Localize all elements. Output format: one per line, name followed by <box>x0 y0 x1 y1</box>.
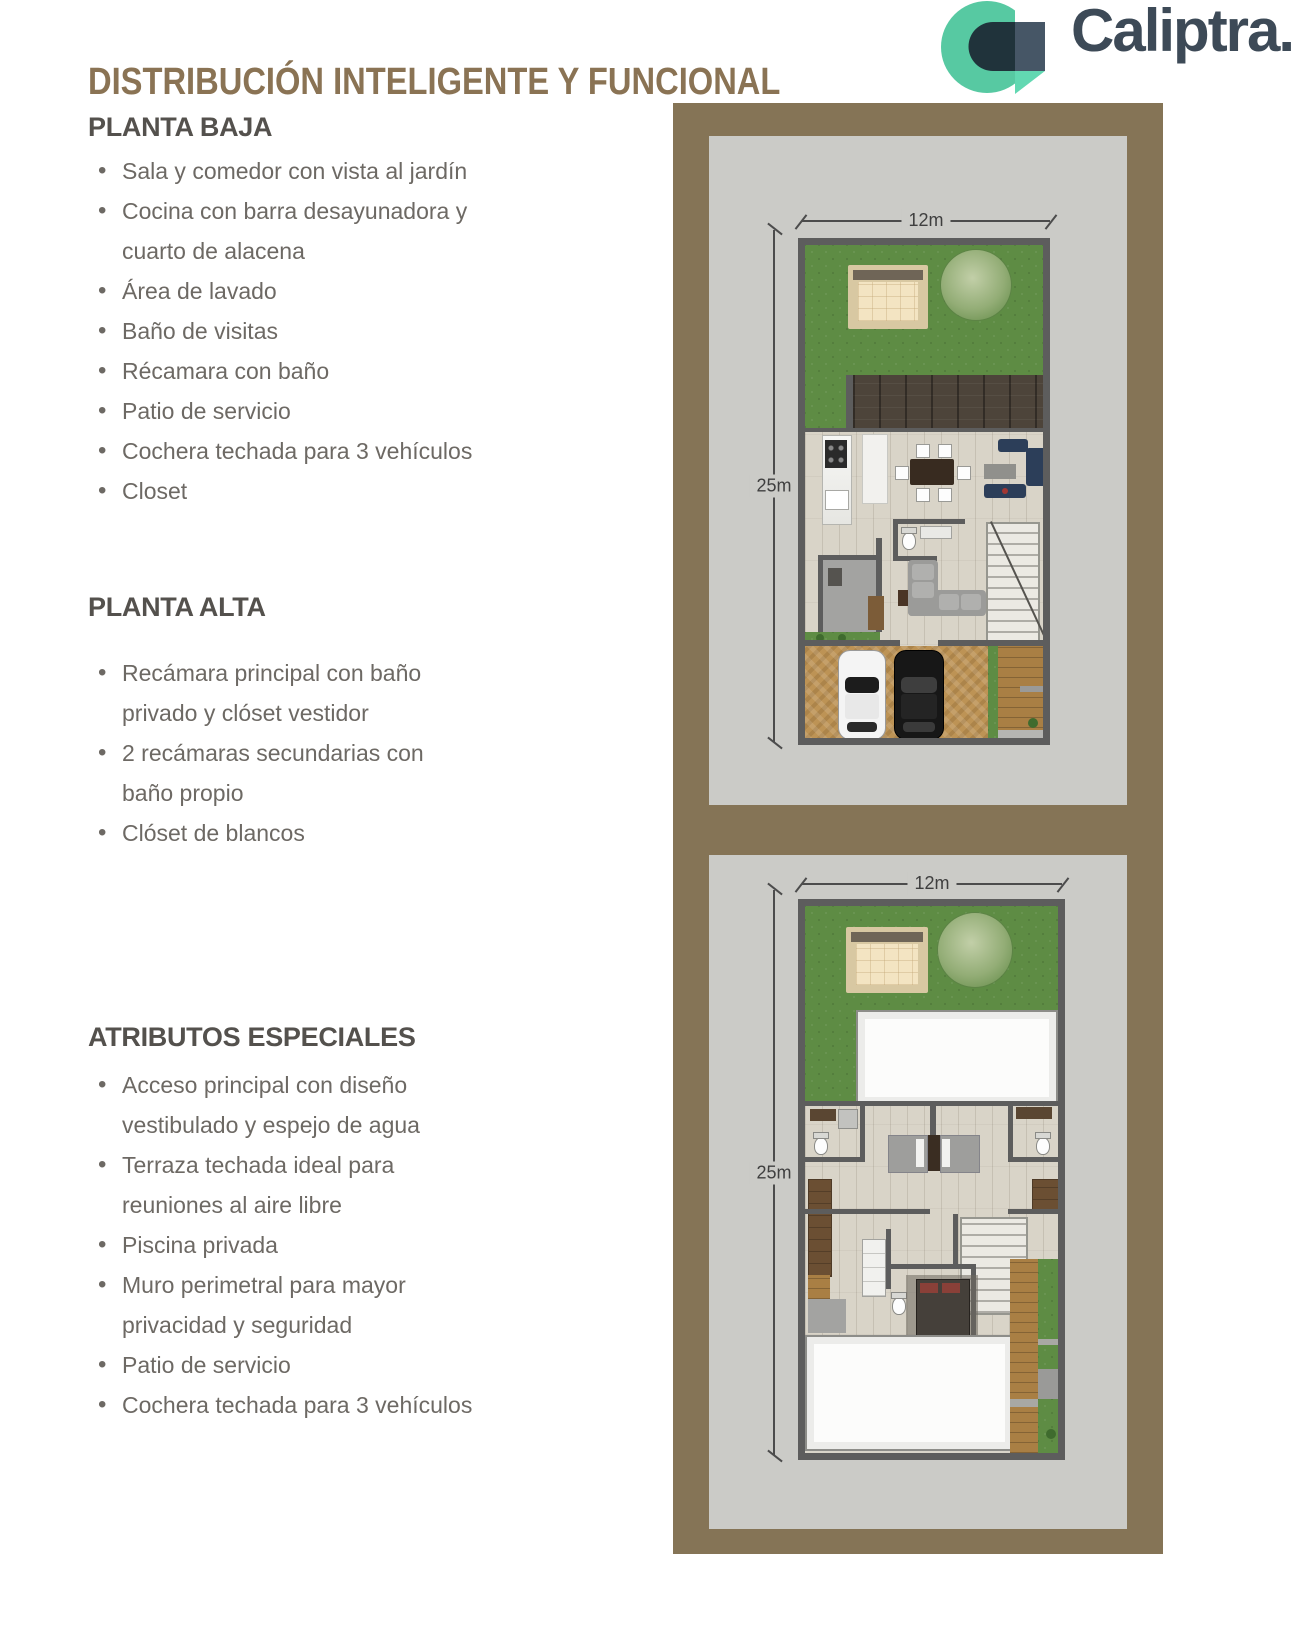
sofa-cushion <box>912 564 934 580</box>
car-black <box>894 650 944 738</box>
height-dimension: 25m <box>773 230 775 742</box>
wall <box>1008 1157 1058 1162</box>
curb <box>1010 1399 1038 1407</box>
sofa-cushion <box>912 582 934 598</box>
wall <box>805 1209 930 1214</box>
car-white <box>838 650 886 738</box>
bed-pillow <box>942 1139 950 1167</box>
stairs <box>986 522 1040 646</box>
daybed-headrest <box>853 270 923 280</box>
width-dimension: 12m <box>802 883 1062 885</box>
list-item: Sala y comedor con vista al jardín <box>122 151 522 191</box>
list-item: Cochera techada para 3 vehículos <box>122 431 522 471</box>
patio-slab <box>1038 1369 1058 1399</box>
carport-roof <box>805 1335 1014 1451</box>
rug <box>984 464 1016 479</box>
kitchen-island <box>862 434 888 504</box>
garden-daybed <box>846 927 928 993</box>
wall <box>893 519 965 524</box>
wall <box>886 1229 891 1289</box>
curb <box>1038 1339 1058 1345</box>
height-dimension: 25m <box>773 890 775 1455</box>
desk <box>1026 448 1043 486</box>
wall <box>805 428 1043 432</box>
list-item: Cocina con barra desayunadora y cuarto d… <box>122 191 522 271</box>
wall <box>1008 1209 1058 1214</box>
bathroom-vanity <box>1016 1107 1052 1119</box>
section-heading: ATRIBUTOS ESPECIALES <box>88 1022 578 1053</box>
dining-chair <box>938 444 952 458</box>
dining-chair <box>916 488 930 502</box>
bed-pillow <box>920 1283 938 1293</box>
list-item: Terraza techada ideal para reuniones al … <box>122 1145 522 1225</box>
planta-baja-lot <box>805 245 1043 738</box>
car-rear-window <box>903 722 935 732</box>
width-dimension: 12m <box>802 220 1050 222</box>
dining-chair <box>957 466 971 480</box>
car-rear-window <box>847 722 877 732</box>
flyer-page: { "header": { "title": "DISTRIBUCIÓN INT… <box>0 0 1312 1628</box>
decor-accent <box>1002 488 1008 494</box>
list-item: Muro perimetral para mayor privacidad y … <box>122 1265 522 1345</box>
garden-daybed <box>848 265 928 329</box>
car-windshield <box>901 677 937 693</box>
planta-alta-canvas: 12m 25m <box>709 855 1127 1529</box>
planta-baja-plan <box>798 238 1050 745</box>
wall <box>953 1214 958 1264</box>
feature-list: Sala y comedor con vista al jardín Cocin… <box>88 151 522 511</box>
section-atributos-especiales: ATRIBUTOS ESPECIALES Acceso principal co… <box>88 1022 578 1425</box>
list-item: Cochera techada para 3 vehículos <box>122 1385 522 1425</box>
list-item: Acceso principal con diseño vestibulado … <box>122 1065 522 1145</box>
toilet-icon <box>1036 1137 1050 1155</box>
section-heading: PLANTA BAJA <box>88 112 578 143</box>
bush-icon <box>1028 718 1038 728</box>
car-roof <box>901 694 937 719</box>
list-item: Patio de servicio <box>122 391 522 431</box>
wall <box>805 1157 865 1162</box>
planta-alta-frame: 12m 25m <box>673 832 1163 1554</box>
planta-alta-lot <box>805 906 1058 1453</box>
bathroom-vanity <box>810 1109 836 1121</box>
planta-baja-frame: 12m 25m <box>673 103 1163 832</box>
laundry-unit <box>828 568 842 586</box>
bush-icon <box>1046 1429 1056 1439</box>
toilet-icon <box>892 1297 906 1315</box>
terrace-deck <box>853 375 1043 432</box>
closet <box>808 1179 832 1277</box>
terrace-roof-void <box>856 1010 1058 1106</box>
side-grass-strip <box>1038 1259 1058 1453</box>
height-dimension-label: 25m <box>749 1161 798 1184</box>
wall <box>846 375 853 432</box>
side-path <box>1010 1259 1038 1453</box>
dining-chair <box>895 466 909 480</box>
sofa-cushion <box>961 594 981 610</box>
height-dimension-label: 25m <box>749 475 798 498</box>
headboard <box>926 1135 940 1171</box>
section-planta-baja: PLANTA BAJA Sala y comedor con vista al … <box>88 112 578 511</box>
feature-list: Acceso principal con diseño vestibulado … <box>88 1065 522 1425</box>
curb <box>998 730 1043 738</box>
toilet-icon <box>814 1137 828 1155</box>
bed-pillow <box>942 1283 960 1293</box>
list-item: 2 recámaras secundarias con baño propio <box>122 733 522 813</box>
tree-icon <box>938 913 1012 987</box>
bed-pillow <box>916 1139 924 1167</box>
list-item: Récamara con baño <box>122 351 522 391</box>
side-grass-strip <box>988 646 998 738</box>
wall <box>1008 1101 1013 1161</box>
laundry-fixtures <box>862 1239 886 1297</box>
console-table <box>998 439 1028 452</box>
planta-alta-plan <box>798 899 1065 1460</box>
curb <box>1020 686 1043 692</box>
caliptra-c-icon <box>941 0 1045 94</box>
planta-baja-canvas: 12m 25m <box>709 136 1127 805</box>
list-item: Baño de visitas <box>122 311 522 351</box>
list-item: Piscina privada <box>122 1225 522 1265</box>
bathroom-vanity <box>920 526 952 539</box>
section-planta-alta: PLANTA ALTA Recámara principal con baño … <box>88 592 578 853</box>
daybed-mattress <box>858 282 918 321</box>
logo-wordmark: Caliptra. <box>1071 0 1293 68</box>
sofa-cushion <box>939 594 959 610</box>
list-item: Área de lavado <box>122 271 522 311</box>
entry-door <box>868 596 884 630</box>
caliptra-logo: Caliptra. <box>941 0 1293 94</box>
wall <box>893 519 898 561</box>
section-heading: PLANTA ALTA <box>88 592 578 623</box>
kitchen-sink <box>825 490 849 510</box>
page-title: DISTRIBUCIÓN INTELIGENTE Y FUNCIONAL <box>88 61 780 104</box>
toilet-icon <box>902 532 916 550</box>
closet <box>1032 1179 1058 1213</box>
feature-list: Recámara principal con baño privado y cl… <box>88 653 522 853</box>
tree-icon <box>941 250 1011 320</box>
list-item: Patio de servicio <box>122 1345 522 1385</box>
list-item: Closet <box>122 471 522 511</box>
shower <box>838 1109 858 1129</box>
daybed-mattress <box>856 944 918 985</box>
wall <box>860 1101 865 1161</box>
dining-table <box>910 459 954 485</box>
width-dimension-label: 12m <box>907 872 956 895</box>
wall <box>930 1101 936 1135</box>
side-table <box>898 590 908 606</box>
car-windshield <box>845 677 879 693</box>
width-dimension-label: 12m <box>901 209 950 232</box>
wall <box>886 1264 971 1269</box>
dining-chair <box>916 444 930 458</box>
side-path <box>808 1275 830 1299</box>
service-patio <box>808 1299 846 1333</box>
dining-chair <box>938 488 952 502</box>
stove <box>825 440 847 468</box>
list-item: Recámara principal con baño privado y cl… <box>122 653 522 733</box>
list-item: Clóset de blancos <box>122 813 522 853</box>
car-roof <box>845 694 879 719</box>
daybed-headrest <box>851 932 923 942</box>
